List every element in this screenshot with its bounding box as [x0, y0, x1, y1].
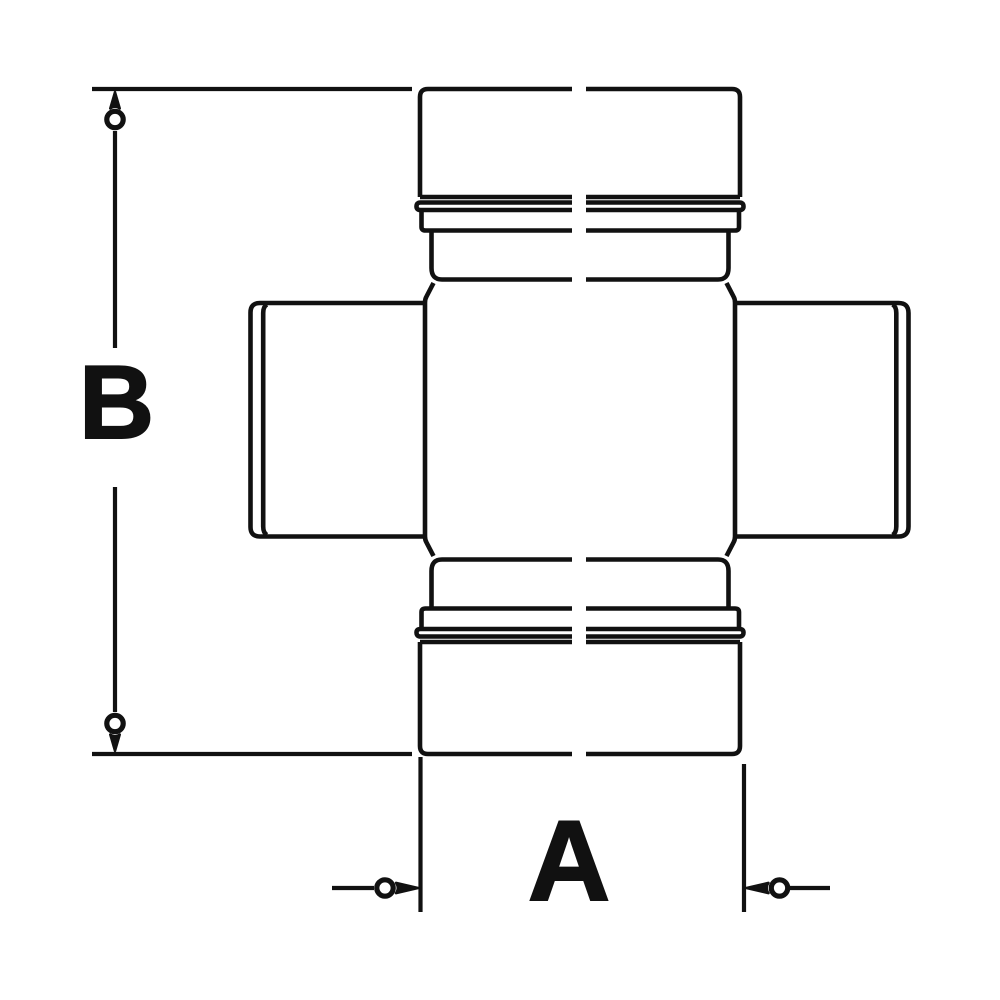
bottom-bearing-cup — [417, 537, 744, 755]
right-bearing-cup — [735, 303, 909, 537]
left-bearing-cup — [251, 303, 426, 537]
part-outline — [251, 89, 909, 754]
left-cup-seam — [263, 305, 267, 536]
bottom-snap-ring — [417, 629, 744, 637]
top-bearing-cup — [417, 89, 744, 303]
top-snap-ring — [417, 203, 744, 211]
right-cup-seam — [893, 305, 897, 536]
arrow-left-icon — [746, 880, 788, 896]
dimension-a: A — [332, 757, 830, 925]
arrow-right-icon — [377, 880, 419, 896]
center-block — [425, 303, 735, 537]
dimension-a-label: A — [528, 798, 610, 925]
arrow-up-icon — [107, 92, 123, 128]
dimension-b: B — [79, 89, 412, 754]
technical-drawing: B — [0, 0, 1000, 1000]
dimension-b-label: B — [79, 345, 154, 461]
drawing-svg: B — [0, 0, 1000, 1000]
arrow-down-icon — [107, 715, 123, 751]
top-chamfers — [425, 283, 735, 303]
bottom-chamfers — [425, 537, 735, 557]
